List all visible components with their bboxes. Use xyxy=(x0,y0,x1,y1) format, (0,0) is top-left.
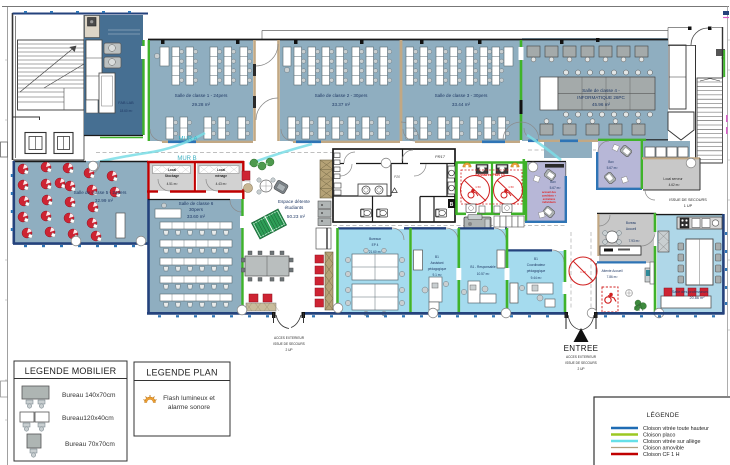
svg-text:Attente Accueil: Attente Accueil xyxy=(601,269,622,273)
svg-text:Cloison CF 1 H: Cloison CF 1 H xyxy=(643,452,680,458)
svg-text:9.1 m²: 9.1 m² xyxy=(432,273,441,277)
svg-text:Local serveur: Local serveur xyxy=(663,177,683,181)
svg-text:32.99 m²: 32.99 m² xyxy=(95,198,114,203)
svg-text:ISSUE DE SECOURS: ISSUE DE SECOURS xyxy=(669,198,707,202)
svg-text:33.60 m²: 33.60 m² xyxy=(187,214,206,219)
svg-text:18.60 m²: 18.60 m² xyxy=(120,109,133,113)
svg-text:EP 4: EP 4 xyxy=(372,243,379,247)
svg-text:accueil des: accueil des xyxy=(542,190,557,194)
svg-text:1.50: 1.50 xyxy=(508,185,514,189)
svg-text:Flash lumineux et: Flash lumineux et xyxy=(163,395,215,402)
svg-text:Box: Box xyxy=(550,180,556,184)
svg-text:Salle de classe 6: Salle de classe 6 xyxy=(179,201,214,206)
svg-text:INFORMATIQUE 26PC: INFORMATIQUE 26PC xyxy=(577,95,625,100)
svg-text:Accueil: Accueil xyxy=(626,227,637,231)
svg-text:individuels: individuels xyxy=(542,200,556,204)
svg-text:Cloison placo: Cloison placo xyxy=(643,433,675,439)
svg-text:ISSUE DE SECOURS: ISSUE DE SECOURS xyxy=(273,342,305,346)
svg-text:Cloison amovible: Cloison amovible xyxy=(643,446,684,452)
svg-text:2 UP: 2 UP xyxy=(285,348,292,352)
svg-text:Espace détente: Espace détente xyxy=(278,199,310,204)
svg-text:21.60 m²: 21.60 m² xyxy=(369,250,382,254)
svg-text:ACCES EXTERIEUR: ACCES EXTERIEUR xyxy=(274,336,305,340)
svg-text:étudiants: étudiants xyxy=(285,205,304,210)
svg-text:20.86 m²: 20.86 m² xyxy=(690,296,706,300)
svg-text:Coordinateur: Coordinateur xyxy=(527,263,546,267)
svg-text:ENTREE: ENTREE xyxy=(564,344,599,353)
svg-text:MUR A: MUR A xyxy=(178,137,197,143)
svg-text:Stockage: Stockage xyxy=(165,174,179,178)
svg-text:ACCES EXTERIEUR: ACCES EXTERIEUR xyxy=(566,355,597,359)
svg-text:PR17: PR17 xyxy=(435,154,446,159)
svg-text:Bureau 140x70cm: Bureau 140x70cm xyxy=(62,392,116,399)
svg-text:Bureau120x40cm: Bureau120x40cm xyxy=(62,415,114,422)
svg-text:4.51 m²: 4.51 m² xyxy=(167,182,178,186)
svg-text:Salle de classe 2 - 30pers: Salle de classe 2 - 30pers xyxy=(315,93,369,98)
svg-text:33.37 m²: 33.37 m² xyxy=(332,102,351,107)
svg-text:7.86 m²: 7.86 m² xyxy=(607,275,618,279)
svg-text:Salle des professeurs: Salle des professeurs xyxy=(672,290,709,294)
svg-text:Sanitaires PMR 13: Sanitaires PMR 13 xyxy=(475,173,505,177)
svg-text:7.93 m²: 7.93 m² xyxy=(629,239,640,243)
svg-text:Salle de classe 5 - 22pers: Salle de classe 5 - 22pers xyxy=(74,190,128,195)
svg-text:2 UP: 2 UP xyxy=(577,367,584,371)
svg-text:B1: B1 xyxy=(435,255,439,259)
svg-text:50.23 m²: 50.23 m² xyxy=(287,214,306,219)
svg-text:Bureau 70x70cm: Bureau 70x70cm xyxy=(65,441,115,448)
svg-text:10.57 m²: 10.57 m² xyxy=(477,272,490,276)
svg-text:29.28 m²: 29.28 m² xyxy=(192,102,211,107)
svg-text:alarme sonore: alarme sonore xyxy=(168,404,210,411)
svg-text:B: B xyxy=(450,202,454,208)
svg-text:B1 - Responsable: B1 - Responsable xyxy=(470,265,496,269)
svg-text:5.67 m²: 5.67 m² xyxy=(550,186,561,190)
svg-text:1 UP: 1 UP xyxy=(684,204,693,208)
svg-text:LEGENDE PLAN: LEGENDE PLAN xyxy=(146,368,217,378)
svg-text:Salle de classe 4 -: Salle de classe 4 - xyxy=(582,88,620,93)
svg-text:B1: B1 xyxy=(534,257,538,261)
svg-text:30pers: 30pers xyxy=(189,207,204,212)
svg-text:9.44 m²: 9.44 m² xyxy=(531,276,542,280)
svg-text:ménage: ménage xyxy=(215,174,227,178)
svg-text:1.50: 1.50 xyxy=(475,185,481,189)
svg-text:Local: Local xyxy=(168,168,176,172)
svg-text:candidats +: candidats + xyxy=(542,193,557,197)
svg-text:Cloison vitrée toute hauteur: Cloison vitrée toute hauteur xyxy=(643,426,709,432)
svg-text:Salle de classe 1 - 24pers: Salle de classe 1 - 24pers xyxy=(175,93,229,98)
svg-text:5.67 m²: 5.67 m² xyxy=(607,166,618,170)
svg-text:pédagogique: pédagogique xyxy=(428,267,447,271)
svg-text:FAB LAB: FAB LAB xyxy=(118,101,134,105)
svg-text:P20: P20 xyxy=(394,175,400,179)
svg-text:Bureaux: Bureaux xyxy=(369,237,381,241)
svg-text:pédagogique: pédagogique xyxy=(527,269,546,273)
svg-text:Local: Local xyxy=(217,168,225,172)
svg-text:Cloison vitrée sur allège: Cloison vitrée sur allège xyxy=(643,439,701,445)
svg-text:4.43 m²: 4.43 m² xyxy=(216,182,227,186)
svg-text:33.44 m²: 33.44 m² xyxy=(452,102,471,107)
svg-text:entretiens: entretiens xyxy=(543,197,556,201)
svg-text:Assistant: Assistant xyxy=(431,261,444,265)
svg-text:4.62 m²: 4.62 m² xyxy=(669,183,680,187)
svg-text:LEGENDE MOBILIER: LEGENDE MOBILIER xyxy=(25,366,117,376)
svg-text:1.50: 1.50 xyxy=(580,270,586,274)
svg-text:Bureau: Bureau xyxy=(626,221,637,225)
svg-text:Box: Box xyxy=(608,160,614,164)
svg-text:LÉGENDE: LÉGENDE xyxy=(647,410,680,419)
svg-text:ISSUE DE SECOURS: ISSUE DE SECOURS xyxy=(565,361,597,365)
svg-text:Salle de classe 3 - 30pers: Salle de classe 3 - 30pers xyxy=(435,93,489,98)
svg-text:45.96 m²: 45.96 m² xyxy=(592,102,611,107)
